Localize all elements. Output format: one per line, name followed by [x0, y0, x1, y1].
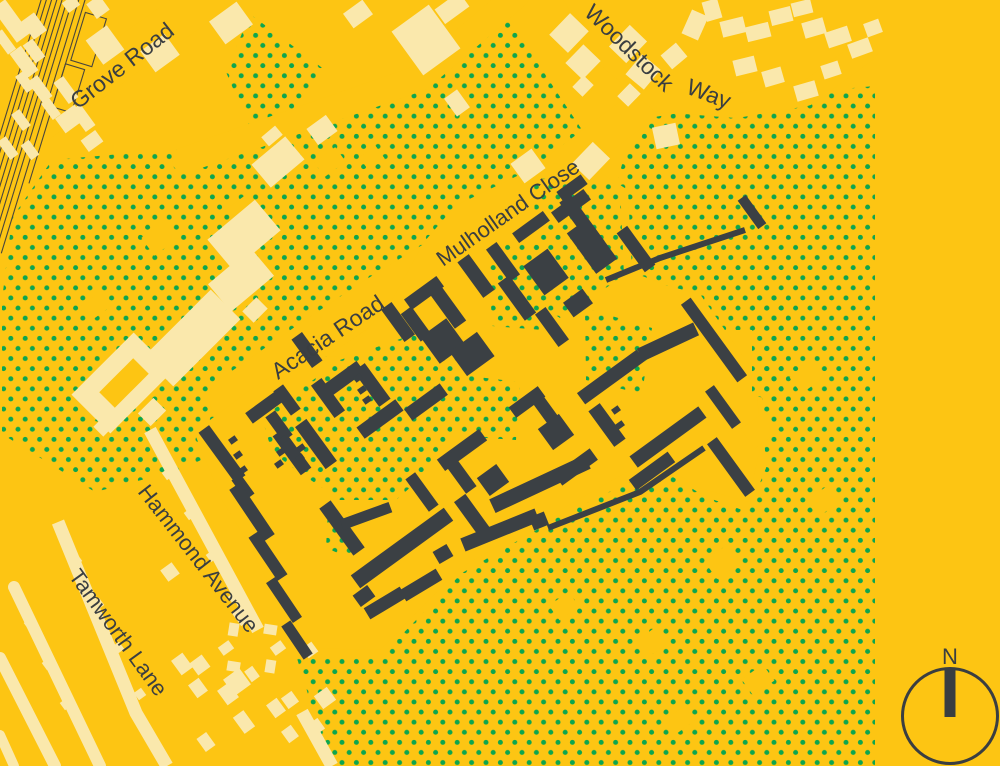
- svg-text:N: N: [942, 644, 958, 669]
